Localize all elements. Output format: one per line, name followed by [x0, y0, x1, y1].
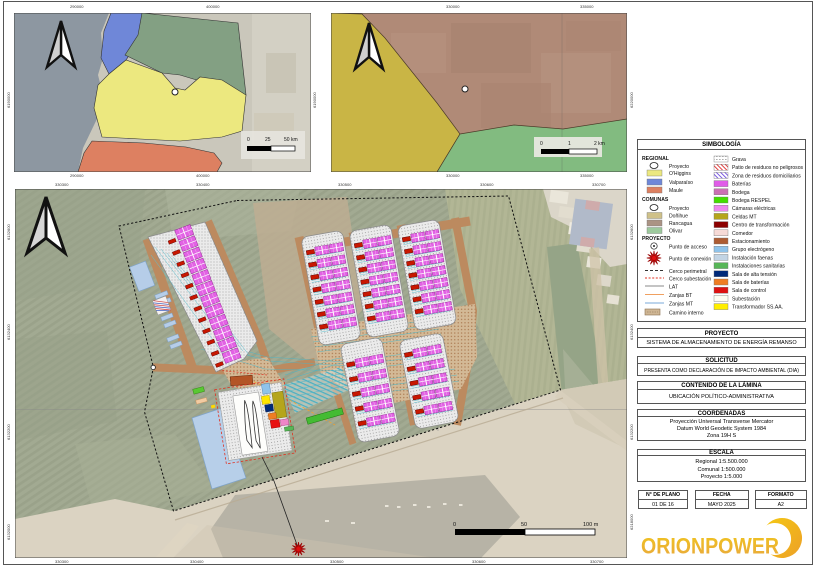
- svg-text:50: 50: [521, 522, 527, 528]
- svg-text:25: 25: [265, 137, 271, 143]
- svg-text:ORIONPOWER: ORIONPOWER: [641, 534, 779, 559]
- svg-text:Cerco perimetral: Cerco perimetral: [669, 269, 707, 275]
- svg-text:Sala de control: Sala de control: [732, 288, 766, 294]
- svg-text:Transformador SS.AA.: Transformador SS.AA.: [732, 305, 783, 311]
- svg-text:Olivar: Olivar: [669, 229, 683, 235]
- svg-text:Baterías: Baterías: [732, 182, 751, 188]
- svg-text:Bodega RESPEL: Bodega RESPEL: [732, 198, 771, 204]
- svg-text:Proyecto: Proyecto: [669, 164, 689, 170]
- svg-text:Comedor: Comedor: [732, 231, 753, 237]
- svg-text:Grupo electrógeno: Grupo electrógeno: [732, 247, 774, 253]
- svg-text:1: 1: [568, 141, 571, 147]
- svg-text:100 m: 100 m: [583, 522, 599, 528]
- svg-text:0: 0: [540, 141, 543, 147]
- svg-text:Valparaíso: Valparaíso: [669, 180, 693, 186]
- svg-text:Subestación: Subestación: [732, 296, 760, 302]
- svg-text:Zanjas MT: Zanjas MT: [669, 302, 693, 308]
- svg-text:PROYECTO: PROYECTO: [642, 236, 671, 242]
- svg-text:0: 0: [453, 522, 456, 528]
- svg-text:Proyecto: Proyecto: [669, 206, 689, 212]
- svg-text:Punto de acceso: Punto de acceso: [669, 245, 707, 251]
- svg-text:Punto de conexión: Punto de conexión: [669, 257, 711, 263]
- svg-text:Maule: Maule: [669, 188, 683, 194]
- svg-text:Centro de transformación: Centro de transformación: [732, 223, 790, 229]
- svg-text:Zona de residuos domiciliarios: Zona de residuos domiciliarios: [732, 173, 801, 179]
- svg-text:Cerco subestación: Cerco subestación: [669, 277, 711, 283]
- svg-text:Sala de alta tensión: Sala de alta tensión: [732, 272, 777, 278]
- svg-text:Celdas MT: Celdas MT: [732, 214, 757, 220]
- svg-text:LAT: LAT: [669, 285, 678, 291]
- svg-text:Zanjas BT: Zanjas BT: [669, 293, 692, 299]
- svg-text:Patio de residuos no peligroso: Patio de residuos no peligrosos: [732, 165, 804, 171]
- svg-text:Cámaras eléctricas: Cámaras eléctricas: [732, 206, 776, 212]
- svg-text:COMUNAS: COMUNAS: [642, 197, 669, 203]
- svg-text:Instalaciones sanitarias: Instalaciones sanitarias: [732, 264, 785, 270]
- svg-text:0: 0: [247, 137, 250, 143]
- svg-text:O'Higgins: O'Higgins: [669, 171, 691, 177]
- svg-text:Rancagua: Rancagua: [669, 221, 692, 227]
- svg-text:Camino interno: Camino interno: [669, 311, 704, 317]
- svg-text:2 km: 2 km: [594, 141, 605, 147]
- svg-text:Sala de baterías: Sala de baterías: [732, 280, 770, 286]
- svg-text:50 km: 50 km: [284, 137, 298, 143]
- svg-text:REGIONAL: REGIONAL: [642, 156, 669, 162]
- svg-text:Estacionamiento: Estacionamiento: [732, 239, 770, 245]
- svg-text:Doñihue: Doñihue: [669, 214, 688, 220]
- svg-text:Grava: Grava: [732, 157, 746, 163]
- svg-text:Instalación faenas: Instalación faenas: [732, 255, 774, 261]
- svg-text:Bodega: Bodega: [732, 190, 750, 196]
